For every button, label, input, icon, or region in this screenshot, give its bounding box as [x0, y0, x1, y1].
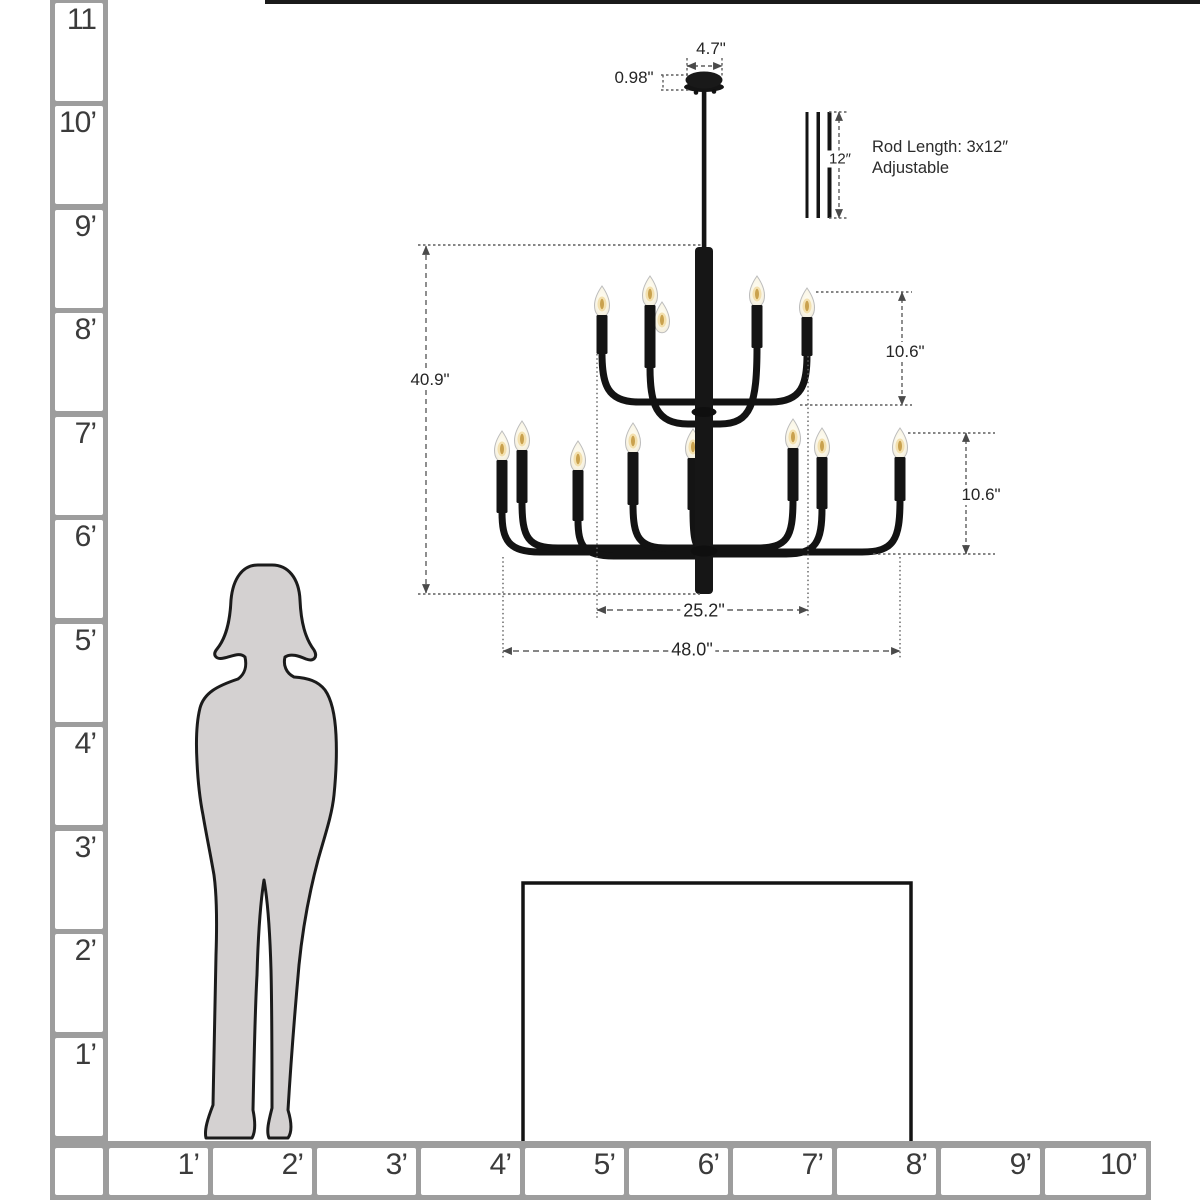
ruler-foot-label: 10’	[59, 106, 96, 140]
canopy-height-label: 0.98"	[611, 68, 656, 88]
ruler-foot-label: 2’	[75, 934, 96, 968]
dimension-diagram-page: 11 10’ 9’ 8’ 7’ 6’ 5’ 4’ 3’ 2’ 1’ 1’ 2’ …	[0, 0, 1200, 1200]
lower-tier-height-label: 10.6"	[958, 485, 1003, 505]
ruler-foot-label: 4’	[490, 1148, 511, 1182]
horizontal-scale-ruler: 1’ 2’ 3’ 4’ 5’ 6’ 7’ 8’ 9’ 10’	[104, 1141, 1151, 1200]
ruler-foot-label: 7’	[802, 1148, 823, 1182]
rod-segment-label: 12″	[826, 151, 854, 168]
vertical-ruler-cell: 8’	[55, 313, 103, 411]
ruler-corner-cell	[55, 1148, 103, 1195]
vertical-ruler-cell: 6’	[55, 520, 103, 618]
rod-note: Rod Length: 3x12″ Adjustable	[872, 137, 1008, 179]
dim-overall-height	[418, 245, 701, 594]
horizontal-ruler-cell: 4’	[421, 1148, 520, 1195]
canopy-screw	[712, 89, 717, 94]
ruler-foot-label: 3’	[75, 831, 96, 865]
vertical-ruler-cell: 7’	[55, 417, 103, 515]
ruler-foot-label: 7’	[75, 417, 96, 451]
horizontal-ruler-cell: 7’	[733, 1148, 832, 1195]
upper-tier-width-label: 25.2"	[680, 601, 727, 622]
overall-height-label: 40.9"	[407, 370, 452, 390]
canopy-screw	[694, 90, 699, 95]
ruler-foot-label: 9’	[1010, 1148, 1031, 1182]
horizontal-ruler-cell: 3’	[317, 1148, 416, 1195]
horizontal-ruler-cell: 8’	[837, 1148, 936, 1195]
ruler-foot-label: 9’	[75, 210, 96, 244]
canopy-width-label: 4.7"	[693, 39, 729, 59]
ruler-foot-label: 5’	[75, 624, 96, 658]
vertical-ruler-cell: 1’	[55, 1038, 103, 1136]
chandelier-canopy	[684, 72, 724, 251]
rod-note-line2: Adjustable	[872, 158, 1008, 179]
human-scale-silhouette	[196, 565, 336, 1138]
vertical-ruler-cell: 9’	[55, 210, 103, 308]
vertical-ruler-cell: 2’	[55, 934, 103, 1032]
horizontal-ruler-cell: 9’	[941, 1148, 1040, 1195]
vertical-ruler-cell: 5’	[55, 624, 103, 722]
ruler-foot-label: 1’	[178, 1148, 199, 1182]
horizontal-ruler-cell: 5’	[525, 1148, 624, 1195]
horizontal-ruler-cell: 10’	[1045, 1148, 1146, 1195]
ruler-foot-label: 6’	[698, 1148, 719, 1182]
horizontal-ruler-cell: 6’	[629, 1148, 728, 1195]
ruler-foot-label: 11	[67, 3, 96, 37]
chandelier-bulb-hidden	[655, 302, 670, 333]
ruler-foot-label: 3’	[386, 1148, 407, 1182]
ruler-foot-label: 10’	[1100, 1148, 1137, 1182]
ruler-foot-label: 4’	[75, 727, 96, 761]
upper-tier-height-label: 10.6"	[882, 342, 927, 362]
ruler-foot-label: 8’	[75, 313, 96, 347]
vertical-scale-ruler: 11 10’ 9’ 8’ 7’ 6’ 5’ 4’ 3’ 2’ 1’	[50, 0, 108, 1200]
ruler-foot-label: 1’	[75, 1038, 96, 1072]
vertical-ruler-cell: 11	[55, 3, 103, 101]
overall-width-label: 48.0"	[668, 640, 715, 661]
diagram-canvas	[0, 0, 1200, 1200]
ruler-foot-label: 8’	[906, 1148, 927, 1182]
horizontal-ruler-cell: 1’	[109, 1148, 208, 1195]
vertical-ruler-cell: 3’	[55, 831, 103, 929]
rod-note-line1: Rod Length: 3x12″	[872, 137, 1008, 158]
ruler-foot-label: 6’	[75, 520, 96, 554]
vertical-ruler-cell: 10’	[55, 106, 103, 204]
horizontal-ruler-cell: 2’	[213, 1148, 312, 1195]
ruler-foot-label: 2’	[282, 1148, 303, 1182]
table-outline	[523, 883, 911, 1141]
ruler-foot-label: 5’	[594, 1148, 615, 1182]
ceiling-line	[265, 0, 1200, 4]
vertical-ruler-cell: 4’	[55, 727, 103, 825]
